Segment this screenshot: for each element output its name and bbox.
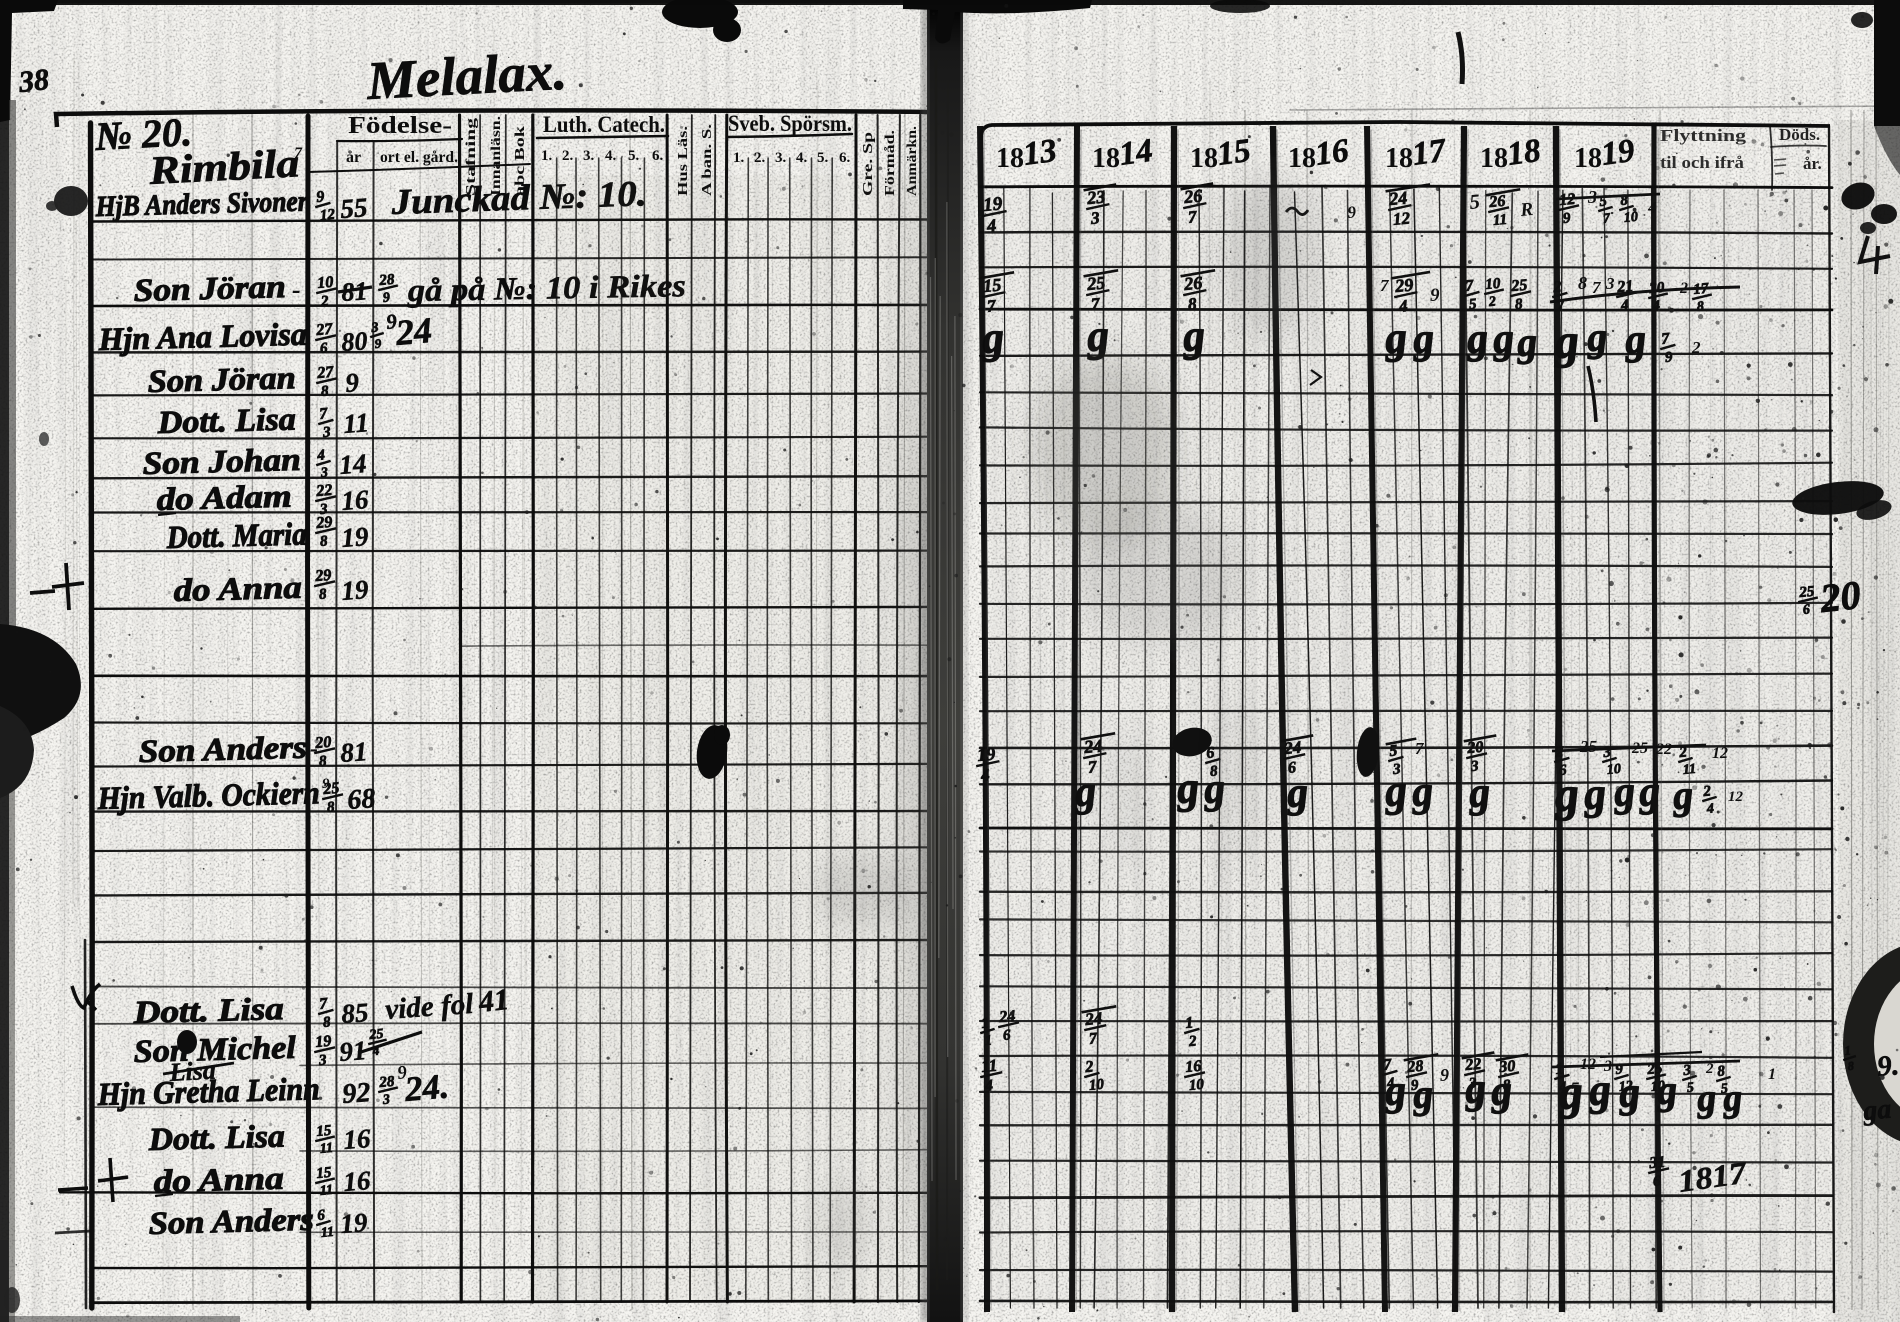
- svg-text:3.: 3.: [583, 148, 595, 164]
- svg-text:92: 92: [341, 1077, 371, 1110]
- svg-text:Luth. Catech.: Luth. Catech.: [543, 112, 665, 137]
- svg-text:1.: 1.: [733, 150, 745, 166]
- svg-text:4.: 4.: [605, 148, 617, 164]
- svg-text:18: 18: [996, 143, 1024, 174]
- svg-text:år.: år.: [1803, 154, 1822, 173]
- svg-text:3: 3: [319, 465, 328, 481]
- svg-text:Dott. Maria: Dott. Maria: [165, 515, 307, 555]
- svg-text:Födelse-: Födelse-: [348, 113, 452, 139]
- svg-text:80: 80: [340, 326, 368, 357]
- svg-text:5.: 5.: [628, 148, 640, 164]
- svg-text:41: 41: [476, 983, 510, 1019]
- svg-text:6: 6: [1802, 602, 1810, 618]
- svg-text:19: 19: [339, 1207, 369, 1239]
- svg-text:38: 38: [16, 63, 50, 99]
- svg-text:4.: 4.: [796, 150, 808, 166]
- svg-text:16: 16: [342, 1123, 372, 1155]
- svg-text:11: 11: [319, 1141, 333, 1157]
- svg-text:til och ifrå: til och ifrå: [1660, 153, 1745, 172]
- svg-text:Son Anders: Son Anders: [148, 1201, 314, 1241]
- svg-text:Hjn Gretha Leinn: Hjn Gretha Leinn: [96, 1070, 320, 1112]
- svg-text:9: 9: [316, 188, 325, 206]
- svg-text:19: 19: [340, 521, 370, 553]
- svg-text:2.: 2.: [754, 150, 766, 166]
- svg-text:6.: 6.: [839, 150, 851, 166]
- svg-text:Son Jöran: Son Jöran: [147, 359, 296, 399]
- svg-text:3.: 3.: [775, 150, 787, 166]
- svg-text:8: 8: [1847, 1059, 1854, 1073]
- svg-text:18: 18: [1385, 143, 1413, 174]
- svg-text:55: 55: [339, 192, 368, 224]
- svg-text:do Anna: do Anna: [173, 569, 302, 608]
- svg-text:vide fol: vide fol: [384, 988, 475, 1026]
- svg-text:Son Anders: Son Anders: [138, 729, 307, 769]
- svg-text:20: 20: [1817, 572, 1862, 621]
- svg-text:13: 13: [1021, 133, 1059, 173]
- svg-text:16: 16: [1313, 133, 1351, 173]
- svg-text:Rimbila: Rimbila: [147, 140, 300, 193]
- svg-text:1: 1: [1844, 1042, 1852, 1058]
- svg-text:24.: 24.: [402, 1066, 450, 1109]
- svg-text:17: 17: [1410, 132, 1449, 172]
- svg-text:HjB Anders Sivoner: HjB Anders Sivoner: [94, 185, 308, 223]
- svg-text:85: 85: [340, 997, 369, 1029]
- svg-text:11: 11: [320, 1225, 334, 1241]
- svg-text:11: 11: [319, 1183, 333, 1199]
- svg-text:3: 3: [381, 1092, 390, 1108]
- svg-text:9: 9: [382, 290, 390, 306]
- svg-text:2.: 2.: [562, 148, 574, 164]
- svg-text:Dott. Lisa: Dott. Lisa: [132, 990, 284, 1030]
- svg-text:18: 18: [1288, 143, 1316, 174]
- svg-text:18: 18: [1505, 133, 1543, 173]
- svg-text:Hjn Valb. Ockiern: Hjn Valb. Ockiern: [96, 774, 320, 816]
- svg-text:14: 14: [1117, 133, 1155, 173]
- svg-text:6.: 6.: [652, 148, 664, 164]
- svg-text:81: 81: [339, 736, 368, 768]
- svg-text:Hjn Ana Lovisa: Hjn Ana Lovisa: [97, 316, 307, 357]
- svg-text:18: 18: [1190, 143, 1218, 174]
- svg-text:1.: 1.: [541, 148, 553, 164]
- svg-text:Dott. Lisa: Dott. Lisa: [156, 400, 296, 440]
- svg-text:18: 18: [1480, 143, 1508, 174]
- svg-text:16: 16: [342, 1165, 372, 1197]
- svg-text:Sveb. Spörsm.: Sveb. Spörsm.: [728, 111, 852, 136]
- svg-text:-: -: [292, 275, 301, 304]
- svg-text:18: 18: [1092, 143, 1120, 174]
- svg-text:Döds.: Döds.: [1779, 125, 1820, 144]
- svg-text:Son Jöran: Son Jöran: [133, 268, 286, 308]
- svg-text:18: 18: [1574, 143, 1602, 174]
- svg-text:5.: 5.: [817, 150, 829, 166]
- svg-text:14: 14: [338, 448, 367, 480]
- svg-text:Melalax.: Melalax.: [364, 41, 568, 111]
- svg-text:Son Johan: Son Johan: [142, 441, 301, 481]
- svg-text:ort el. gård.: ort el. gård.: [380, 149, 458, 166]
- svg-text:12: 12: [319, 207, 336, 224]
- svg-text:19: 19: [1599, 133, 1637, 173]
- svg-text:19: 19: [340, 574, 370, 606]
- svg-text:Flyttning: Flyttning: [1660, 126, 1747, 145]
- svg-text:11: 11: [342, 407, 370, 439]
- svg-text:7: 7: [294, 145, 303, 162]
- svg-text:do Adam: do Adam: [156, 477, 292, 517]
- svg-text:år: år: [346, 149, 361, 166]
- svg-text:16: 16: [340, 484, 370, 516]
- svg-text:Dott. Lisa: Dott. Lisa: [147, 1117, 285, 1157]
- svg-text:15: 15: [1215, 133, 1253, 173]
- svg-text:68: 68: [346, 783, 376, 816]
- svg-text:ga: ga: [1861, 1094, 1893, 1127]
- svg-text:9.: 9.: [1876, 1049, 1900, 1083]
- svg-text:9: 9: [344, 367, 360, 398]
